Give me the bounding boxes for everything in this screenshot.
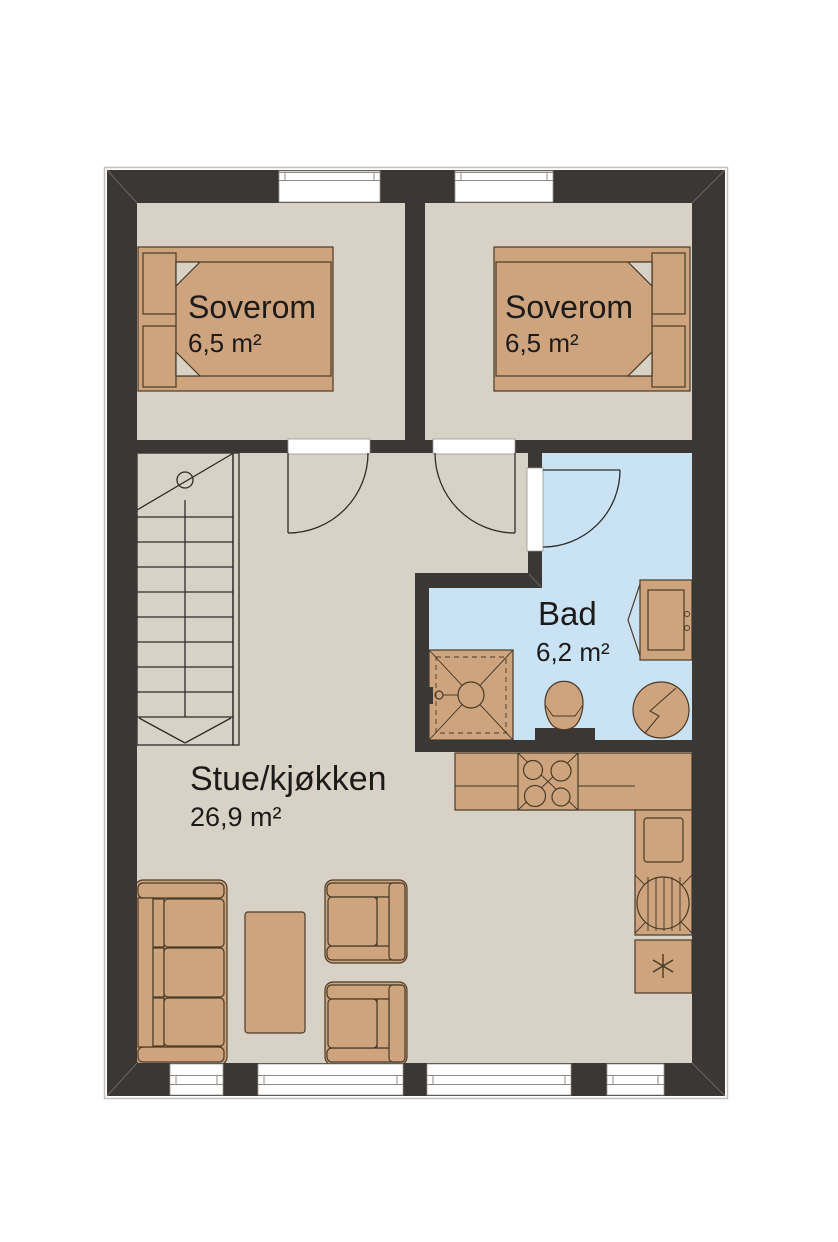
- kitchen-sink: [635, 875, 692, 933]
- sofa-backrest: [138, 898, 153, 1047]
- armchair-back-cushion: [377, 999, 389, 1048]
- sofa-seat: [164, 899, 224, 947]
- wall-interior: [370, 440, 435, 453]
- label-living-area: 26,9 m²: [190, 802, 282, 832]
- sofa-armrest: [138, 883, 224, 898]
- coffee-table: [245, 912, 305, 1033]
- window-bottom-1: [170, 1064, 223, 1095]
- burner: [524, 761, 543, 780]
- wall-interior: [137, 440, 288, 453]
- stove: [518, 753, 578, 810]
- label-living-name: Stue/kjøkken: [190, 760, 387, 798]
- washing-machine: [633, 682, 689, 738]
- sofa-seat: [164, 948, 224, 997]
- sofa-back-cushion: [153, 899, 164, 947]
- label-bedroom-1-area: 6,5 m²: [188, 328, 262, 358]
- sofa: [135, 880, 227, 1065]
- floor-plan-page: Soverom 6,5 m² Soverom 6,5 m² Bad 6,2 m²…: [0, 0, 838, 1242]
- wall-left: [107, 170, 137, 1096]
- window-bottom-4: [607, 1064, 664, 1095]
- wall-bedroom-divider: [405, 203, 425, 453]
- pillow: [143, 326, 176, 387]
- wall-right: [692, 170, 725, 1096]
- label-bedroom-2-name: Soverom: [505, 289, 633, 325]
- pillow: [652, 326, 685, 387]
- burner: [525, 786, 546, 807]
- armchair-back-cushion: [377, 897, 389, 946]
- toilet-bowl: [545, 681, 583, 730]
- pillow: [143, 253, 176, 314]
- burner: [551, 761, 571, 781]
- sofa-seat: [164, 998, 224, 1046]
- armchair-seat: [328, 897, 377, 946]
- window-bottom-2: [258, 1064, 403, 1095]
- shower-drain: [458, 682, 484, 708]
- washing-machine-drum: [633, 682, 689, 738]
- window-top-1: [279, 171, 380, 202]
- burner: [552, 788, 570, 806]
- label-bedroom-1-name: Soverom: [188, 289, 316, 325]
- armchair-2: [325, 982, 407, 1065]
- window-bottom-3: [427, 1064, 571, 1095]
- window-top-2: [455, 171, 553, 202]
- shower: [425, 650, 513, 740]
- armchair-1: [325, 880, 407, 963]
- sofa-armrest: [138, 1047, 224, 1062]
- label-bedroom-2-area: 6,5 m²: [505, 328, 579, 358]
- armchair-backrest: [389, 985, 405, 1062]
- wall-top: [107, 170, 725, 203]
- wall-bathroom-bottom: [415, 740, 692, 752]
- wall-bathroom-step: [415, 573, 542, 588]
- sofa-back-cushion: [153, 998, 164, 1046]
- bathroom-floor-upper: [542, 453, 692, 575]
- pillow: [652, 253, 685, 314]
- label-bathroom-name: Bad: [538, 595, 597, 632]
- wall-bathroom-left-lower: [415, 573, 429, 752]
- floor-plan: Soverom 6,5 m² Soverom 6,5 m² Bad 6,2 m²…: [0, 0, 838, 1242]
- armchair-seat: [328, 999, 377, 1048]
- refrigerator: [635, 940, 692, 993]
- wall-interior: [515, 440, 692, 453]
- sofa-back-cushion: [153, 948, 164, 997]
- label-bathroom-area: 6,2 m²: [536, 637, 610, 667]
- armchair-backrest: [389, 883, 405, 960]
- sink-bowl: [637, 877, 689, 929]
